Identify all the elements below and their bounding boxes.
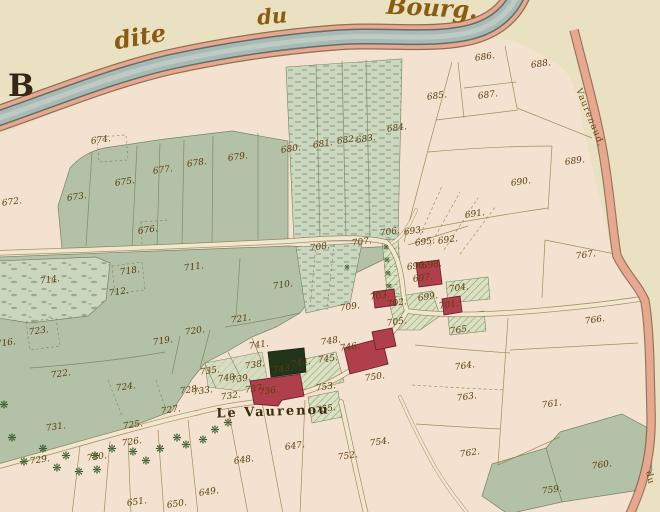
parcel-number-695: 695. (414, 237, 435, 249)
parcel-number-689: 689. (564, 156, 585, 168)
tree-icon: ❋ (386, 284, 392, 291)
parcel-number-685: 685. (426, 91, 447, 103)
parcel-number-716: 716. (0, 338, 17, 350)
parcel-number-723: 723. (28, 326, 49, 338)
tree-icon: ❋ (90, 451, 99, 462)
parcel-number-721: 721. (230, 314, 251, 326)
parcel-number-678: 678. (186, 158, 207, 170)
parcel-number-724: 724. (115, 382, 136, 394)
parcel-number-754: 754. (369, 437, 390, 449)
parcel-number-745: 745. (317, 354, 338, 366)
parcel-number-732: 732. (220, 391, 241, 403)
parcel-number-697: 697. (412, 273, 433, 285)
tree-icon: ❋ (344, 265, 350, 272)
parcel-number-675: 675. (114, 177, 135, 189)
parcel-number-767: 767. (575, 250, 596, 262)
tree-icon: ❋ (19, 457, 28, 468)
parcel-number-698: 698. (421, 260, 442, 272)
parcel-number-719: 719. (152, 336, 173, 348)
tree-icon: ❋ (38, 444, 47, 455)
parcel-number-681: 681. (312, 139, 333, 151)
tree-icon: ❋ (383, 245, 389, 252)
tree-icon: ❋ (7, 433, 16, 444)
parcel-number-725: 725. (122, 420, 143, 432)
parcel-number-687: 687. (477, 90, 498, 102)
parcel-number-712: 712. (108, 287, 129, 299)
parcel-number-763: 763. (456, 392, 477, 404)
parcel-number-733: 733. (192, 386, 213, 398)
parcel-number-746: 746. (339, 342, 360, 354)
parcel-number-647: 647. (284, 441, 305, 453)
parcel-number-691: 691. (464, 209, 485, 221)
parcel-number-677: 677. (152, 165, 173, 177)
parcel-number-752: 752. (337, 451, 358, 463)
tree-icon: ❋ (385, 271, 391, 278)
tree-icon: ❋ (52, 463, 61, 474)
parcel-number-722: 722. (50, 369, 71, 381)
tree-icon: ❋ (141, 456, 150, 467)
tree-icon: ❋ (92, 465, 101, 476)
parcel-number-741: 741. (248, 340, 269, 352)
map-label: dite (112, 21, 168, 54)
parcel-number-650: 650. (166, 499, 187, 511)
parcel-number-673: 673. (66, 192, 87, 204)
parcel-number-708: 708. (309, 242, 330, 254)
tree-icon: ❋ (198, 435, 207, 446)
parcel-number-729: 729. (29, 455, 50, 467)
parcel-number-765: 765. (449, 325, 470, 337)
parcel-number-727: 727. (160, 405, 181, 417)
parcel-number-706: 706. (379, 227, 400, 239)
parcel-number-731: 731. (45, 422, 66, 434)
parcel-number-707: 707. (351, 237, 372, 249)
parcel-number-764: 764. (454, 361, 475, 373)
parcel-number-690: 690. (510, 177, 531, 189)
parcel-number-750: 750. (364, 372, 385, 384)
parcel-number-693: 693. (403, 226, 424, 238)
parcel-number-683: 683. (355, 134, 376, 146)
parcel-number-738: 738. (244, 360, 265, 372)
parcel-number-648: 648. (233, 455, 254, 467)
parcel-number-649: 649. (198, 487, 219, 499)
map-labels: B 647.648.649.650.651.672.673.674.675.67… (0, 0, 660, 512)
parcel-number-709: 709. (339, 302, 360, 314)
parcel-number-701: 701. (438, 300, 459, 312)
parcel-number-705: 705. (386, 317, 407, 329)
map-label: Vaurenaud. (573, 88, 605, 149)
parcel-number-684: 684. (386, 123, 407, 135)
parcel-number-686: 686. (474, 52, 495, 64)
map-label: Bourg. (386, 0, 479, 22)
parcel-number-704: 704. (448, 283, 469, 295)
parcel-number-674: 674. (90, 135, 111, 147)
parcel-number-679: 679. (227, 152, 248, 164)
map-label: Le Vaurenou (216, 404, 330, 421)
tree-icon: ❋ (128, 447, 137, 458)
tree-icon: ❋ (181, 440, 190, 451)
parcel-number-651: 651. (126, 497, 147, 509)
tree-icon: ❋ (107, 444, 116, 455)
parcel-number-766: 766. (584, 315, 605, 327)
tree-icon: ❋ (172, 433, 181, 444)
tree-icon: ❋ (223, 418, 232, 429)
parcel-number-710: 710. (272, 280, 293, 292)
tree-icon: ❋ (210, 425, 219, 436)
section-letter: B (8, 68, 34, 104)
tree-icon: ❋ (155, 444, 164, 455)
parcel-number-748: 748. (320, 336, 341, 348)
parcel-number-692: 692. (437, 235, 458, 247)
parcel-number-714: 714. (39, 275, 60, 287)
parcel-number-676: 676. (137, 225, 158, 237)
parcel-number-761: 761. (541, 399, 562, 411)
parcel-number-720: 720. (184, 326, 205, 338)
parcel-number-682: 682. (336, 135, 357, 147)
tree-icon: ❋ (61, 451, 70, 462)
parcel-number-711: 711. (183, 262, 204, 274)
parcel-number-699: 699. (417, 292, 438, 304)
cadastral-map: B 647.648.649.650.651.672.673.674.675.67… (0, 0, 660, 512)
parcel-number-760: 760. (591, 460, 612, 472)
tree-icon: ❋ (74, 467, 83, 478)
map-label: du (256, 4, 288, 28)
parcel-number-759: 759. (541, 485, 562, 497)
parcel-number-744: 744. (290, 358, 311, 370)
parcel-number-753: 753. (315, 382, 336, 394)
tree-icon: ❋ (0, 400, 9, 411)
tree-icon: ❋ (384, 258, 390, 265)
parcel-number-672: 672. (1, 197, 22, 209)
parcel-number-718: 718. (119, 266, 140, 278)
map-label: du (643, 470, 655, 485)
parcel-number-688: 688. (530, 59, 551, 71)
parcel-number-762: 762. (459, 448, 480, 460)
parcel-number-680: 680. (280, 144, 301, 156)
